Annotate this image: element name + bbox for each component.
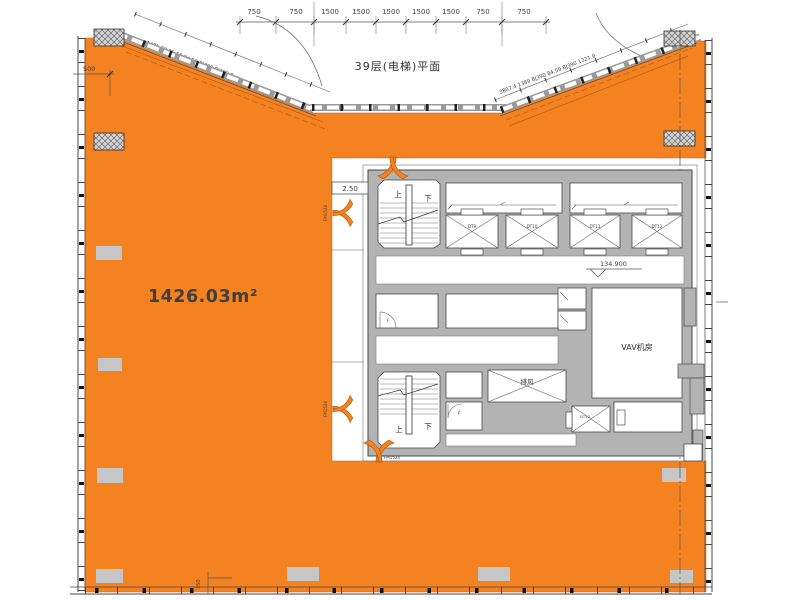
hatched-column xyxy=(664,31,695,46)
elevator-dt9: DT9 xyxy=(446,209,498,255)
fire-door-label: FM1524 xyxy=(323,205,328,221)
drawing-title: 39层(电梯)平面 xyxy=(355,60,442,73)
column xyxy=(98,358,122,371)
elevator-lobby-2 xyxy=(570,183,682,213)
dim-top-1: 750 xyxy=(247,8,260,16)
core-room-d: F xyxy=(446,402,482,430)
floorplan-canvas: 750 750 1500 1500 1500 1500 1500 750 750… xyxy=(0,0,800,600)
elevator-dt11: DT11 xyxy=(570,209,620,255)
hatched-column xyxy=(94,29,124,46)
exhaust-label: 排风 xyxy=(521,377,535,386)
stair-down-label: 下 xyxy=(424,422,432,431)
exhaust-shaft: 排风 xyxy=(488,370,566,402)
elevator-label: DT11 xyxy=(589,224,600,229)
column xyxy=(287,567,319,581)
elevator-dt13: DT13 xyxy=(566,406,610,432)
level-mark-text: 134.900 xyxy=(600,260,627,268)
dim-left-text: 500 xyxy=(83,65,95,73)
elevator-label: DT13 xyxy=(580,414,591,419)
sill-mark: 2.50 xyxy=(332,182,368,194)
dim-top-5: 1500 xyxy=(382,8,400,16)
area-label: 1426.03m² xyxy=(148,287,258,307)
core-corridor-1 xyxy=(376,256,684,284)
sill-mark-text: 2.50 xyxy=(342,185,358,193)
elevator-dt12: DT12 xyxy=(632,209,682,255)
core-room-b xyxy=(446,294,558,328)
stair-up-label: 上 xyxy=(394,190,402,199)
elevator-label: DT12 xyxy=(651,224,662,229)
column xyxy=(96,569,123,583)
core-small-room-2 xyxy=(558,311,586,330)
elevator-lobby-1 xyxy=(446,183,562,213)
dim-bottom-text: 150 xyxy=(196,579,202,589)
dim-top-4: 1500 xyxy=(352,8,370,16)
pier xyxy=(678,364,704,378)
core-corridor-3 xyxy=(446,434,576,446)
floorplan-page: 750 750 1500 1500 1500 1500 1500 750 750… xyxy=(0,0,800,600)
column xyxy=(97,468,123,483)
stair-bottom-left: 上 下 xyxy=(378,372,440,448)
vav-room: VAV机房 xyxy=(592,288,682,398)
stair-up-label: 上 xyxy=(395,425,403,434)
dim-top-8: 750 xyxy=(476,8,489,16)
fire-door-label: FM1524 xyxy=(323,401,328,417)
dim-top-3: 1500 xyxy=(321,8,339,16)
column xyxy=(670,570,693,583)
dim-top-9: 750 xyxy=(517,8,530,16)
vav-room-label: VAV机房 xyxy=(621,342,652,352)
column xyxy=(662,468,686,482)
hatched-column xyxy=(94,133,124,150)
stair-down-label: 下 xyxy=(424,194,432,203)
column xyxy=(96,246,122,260)
dim-top-7: 1500 xyxy=(442,8,460,16)
shaft-niche xyxy=(617,410,625,425)
column xyxy=(478,567,510,581)
stair-divider xyxy=(406,376,412,434)
elevator-dt10: DT10 xyxy=(506,209,558,255)
fire-door-label: FM1524 xyxy=(384,455,400,460)
core-corridor-2 xyxy=(376,336,558,364)
dim-top-2: 750 xyxy=(289,8,302,16)
pier xyxy=(690,378,704,414)
core-room-c xyxy=(446,372,482,398)
stair-divider xyxy=(406,185,412,245)
elevator-label: DT10 xyxy=(526,224,537,229)
core-small-room-1 xyxy=(558,288,586,309)
hatched-column xyxy=(664,131,695,146)
stair-top-left: 上 下 xyxy=(378,180,440,248)
core-room-a: F xyxy=(376,294,438,328)
elevator-label: DT9 xyxy=(468,224,477,229)
facade-jog xyxy=(684,444,702,461)
core: 上 下 DT9 DT10 xyxy=(363,165,697,461)
pier xyxy=(684,288,696,326)
dim-top-6: 1500 xyxy=(412,8,430,16)
